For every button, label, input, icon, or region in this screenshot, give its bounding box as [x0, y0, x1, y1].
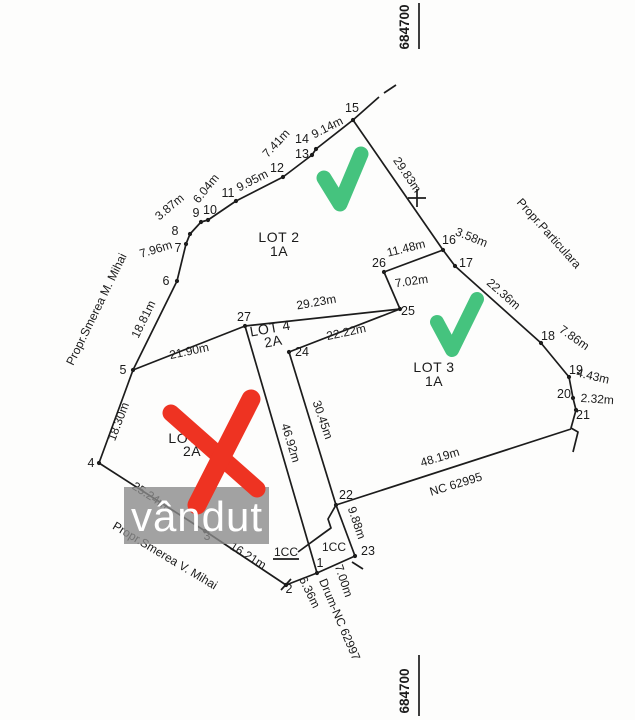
measurement-5-6: 18.81m	[128, 298, 158, 340]
vertex-dot	[188, 232, 192, 236]
measurement-18-19: 7.86m	[557, 322, 592, 353]
point-label-17: 17	[459, 256, 473, 270]
grid-label-bottom: 684700	[397, 668, 412, 713]
vertex-dot	[184, 242, 188, 246]
point-label-5: 5	[120, 363, 127, 377]
vertex-dot	[315, 571, 319, 575]
measurement-24-25: 22.22m	[325, 321, 367, 343]
grid-label-top: 684700	[397, 4, 412, 49]
point-label-7: 7	[175, 241, 182, 255]
point-label-1: 1	[317, 556, 324, 570]
lot2-parcel: 1A	[270, 243, 288, 259]
point-label-4: 4	[88, 456, 95, 470]
measurement-12-13: 7.41m	[260, 126, 293, 160]
point-label-24: 24	[295, 345, 309, 359]
point-label-20: 20	[557, 387, 571, 401]
cadastral-plan: 1 2 3 4 5 6 7 8 9 10 11 12 13 14 15 16 1…	[0, 0, 635, 720]
road-end-dash	[352, 562, 363, 569]
point-label-9: 9	[193, 206, 200, 220]
point-label-25: 25	[401, 304, 415, 318]
lot3-parcel: 1A	[425, 373, 443, 389]
measurement-27-25: 29.23m	[295, 292, 337, 313]
point-label-22: 22	[339, 488, 353, 502]
vertex-dot	[234, 199, 238, 203]
point-label-2: 2	[286, 582, 293, 596]
measurement-8-9: 3.87m	[152, 191, 187, 223]
neighbor-east-label: Propr.Particulara	[514, 195, 584, 271]
measurement-20-21: 2.32m	[580, 391, 614, 407]
vertex-dot	[97, 461, 101, 465]
checkmark-icon-lot3	[437, 299, 477, 350]
vertex-dot	[382, 270, 386, 274]
point-label-13: 13	[295, 147, 309, 161]
vertex-dot	[281, 175, 285, 179]
survey-drawing: 1 2 3 4 5 6 7 8 9 10 11 12 13 14 15 16 1…	[0, 0, 635, 720]
vertex-dot	[453, 264, 457, 268]
sold-label: vândut	[131, 493, 263, 540]
point-label-21: 21	[576, 408, 590, 422]
measurement-15-16: 29.83m	[390, 154, 424, 195]
vertex-dot	[334, 503, 338, 507]
measurement-19-20: 4.43m	[575, 366, 611, 387]
point-label-15: 15	[345, 101, 359, 115]
area-labels: LOT 2 1A LOT 4 2A LOT 3 1A LOT 1 2A 1CC …	[63, 4, 584, 713]
measurement-1-2: 6.36m	[296, 574, 323, 610]
measurement-4-5: 18.30m	[105, 400, 132, 442]
point-label-26: 26	[372, 256, 386, 270]
vertex-dot	[310, 153, 314, 157]
point-label-6: 6	[163, 274, 170, 288]
point-label-14: 14	[295, 132, 309, 146]
vertex-dot	[571, 396, 575, 400]
land-use-1cc-left: 1CC	[274, 545, 298, 559]
vertex-dot	[199, 220, 203, 224]
measurement-10-11: 6.04m	[190, 171, 222, 206]
east-boundary-line	[353, 120, 578, 452]
measurement-26-25: 7.02m	[394, 272, 429, 291]
measurement-6-7: 7.96m	[138, 238, 174, 261]
vertex-dot	[131, 368, 135, 372]
measurement-2-3: 16.21m	[227, 539, 268, 572]
land-use-1cc-right: 1CC	[322, 540, 346, 554]
vertex-dot	[353, 554, 357, 558]
point-label-10: 10	[203, 203, 217, 217]
point-label-11: 11	[222, 186, 235, 200]
point-label-8: 8	[172, 224, 179, 238]
vertex-dot	[206, 218, 210, 222]
vertex-dot	[314, 147, 318, 151]
adjacent-parcel-label: NC 62995	[428, 469, 484, 498]
south-boundary-48m	[336, 429, 571, 505]
measurement-5-27: 21.90m	[168, 340, 210, 362]
measurement-14-15: 9.14m	[309, 114, 345, 142]
neighbor-west-label: Propr.Smerea M. Mihai	[63, 251, 129, 367]
vertex-dot	[441, 248, 445, 252]
vertex-dot	[351, 118, 355, 122]
measurement-27-1: 46.92m	[278, 422, 303, 464]
point-label-23: 23	[361, 544, 375, 558]
vertex-dot	[175, 279, 179, 283]
point-label-27: 27	[237, 310, 251, 324]
measurement-16-17: 3.58m	[453, 225, 489, 250]
measurement-17-18: 22.36m	[484, 276, 523, 313]
boundary-end-dash	[384, 85, 396, 93]
lot4-parcel: 2A	[263, 332, 284, 351]
measurement-11-12: 9.95m	[234, 167, 270, 195]
measurement-26-16: 11.48m	[385, 237, 426, 260]
vertex-dot	[287, 350, 291, 354]
checkmark-icon-lot2	[324, 154, 361, 204]
vertex-dot	[243, 324, 247, 328]
point-label-12: 12	[270, 161, 284, 175]
point-label-18: 18	[541, 329, 555, 343]
measurement-22-23: 9.88m	[345, 505, 369, 541]
sold-overlay: vândut	[124, 399, 269, 544]
